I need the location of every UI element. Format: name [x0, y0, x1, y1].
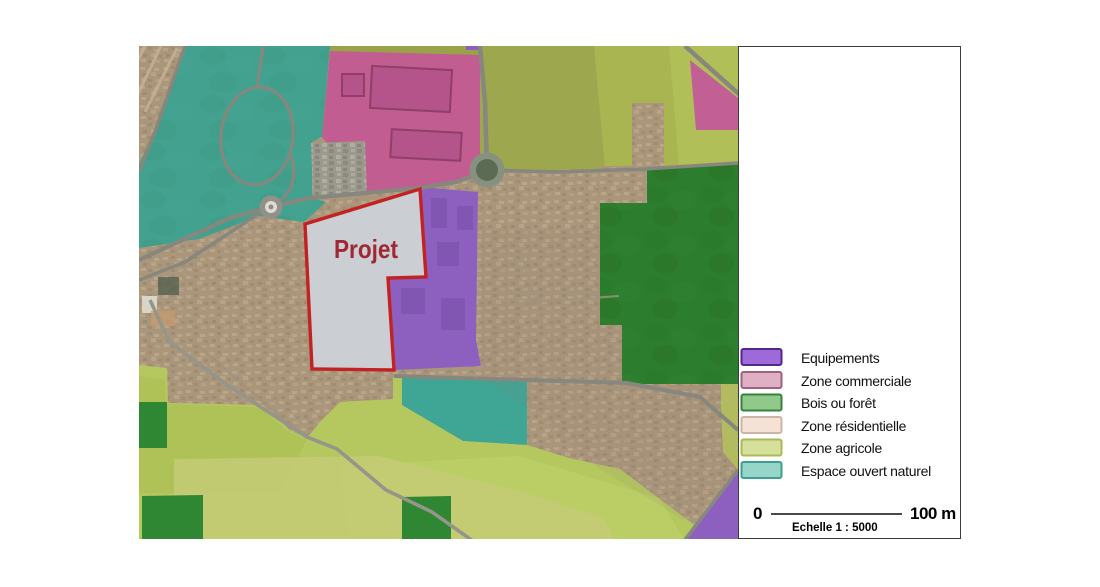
svg-text:Projet: Projet — [334, 234, 398, 264]
